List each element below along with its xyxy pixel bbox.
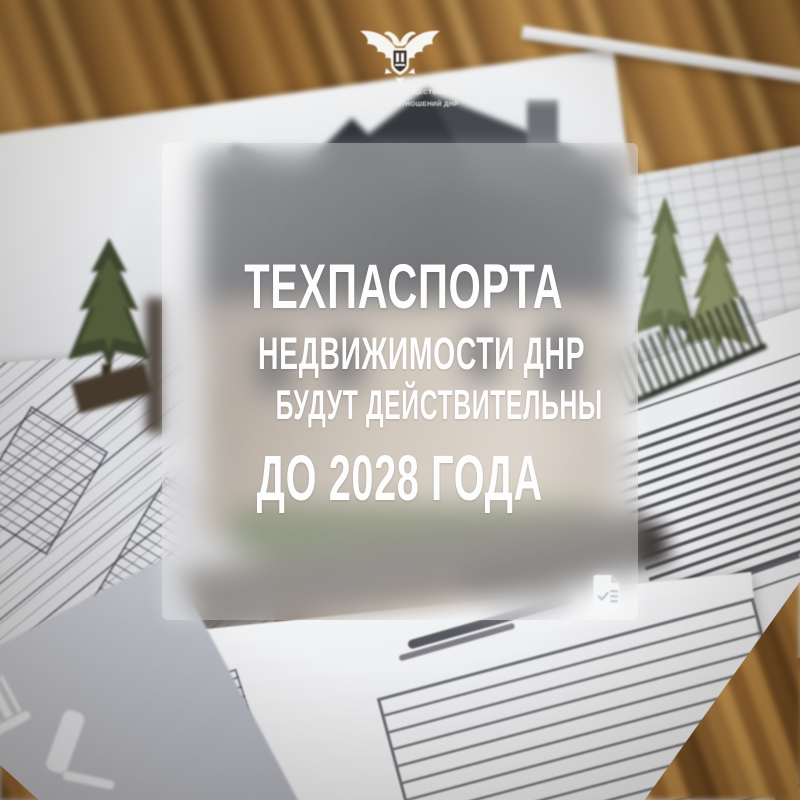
- gavel-watermark-icon: [44, 708, 87, 776]
- ministry-logo: МИНИСТЕРСТВО ИМУЩЕСТВЕННЫХ И ЗЕМЕЛЬНЫХ О…: [318, 24, 482, 109]
- frost-overlay-panel: ТЕХПАСПОРТА НЕДВИЖИМОСТИ ДНР БУДУТ ДЕЙСТ…: [162, 143, 638, 620]
- social-card: МИНИСТЕРСТВО ИМУЩЕСТВЕННЫХ И ЗЕМЕЛЬНЫХ О…: [0, 0, 800, 800]
- gavel-handle: [62, 770, 115, 790]
- model-tree-left: [68, 238, 150, 370]
- headline-line-4: ДО 2028 ГОДА: [162, 445, 638, 511]
- ministry-name-line2: И ЗЕМЕЛЬНЫХ ОТНОШЕНИЙ ДНР: [323, 101, 477, 110]
- document-checklist-icon: [587, 572, 627, 612]
- headline-line-3: БУДУТ ДЕЙСТВИТЕЛЬНЫ: [162, 383, 638, 427]
- headline-line-1: ТЕХПАСПОРТА: [162, 255, 638, 319]
- ministry-name-line1: МИНИСТЕРСТВО ИМУЩЕСТВЕННЫХ: [323, 89, 477, 98]
- dnr-eagle-emblem-icon: [348, 24, 452, 86]
- headline-line-2: НЕДВИЖИМОСТИ ДНР: [162, 331, 638, 377]
